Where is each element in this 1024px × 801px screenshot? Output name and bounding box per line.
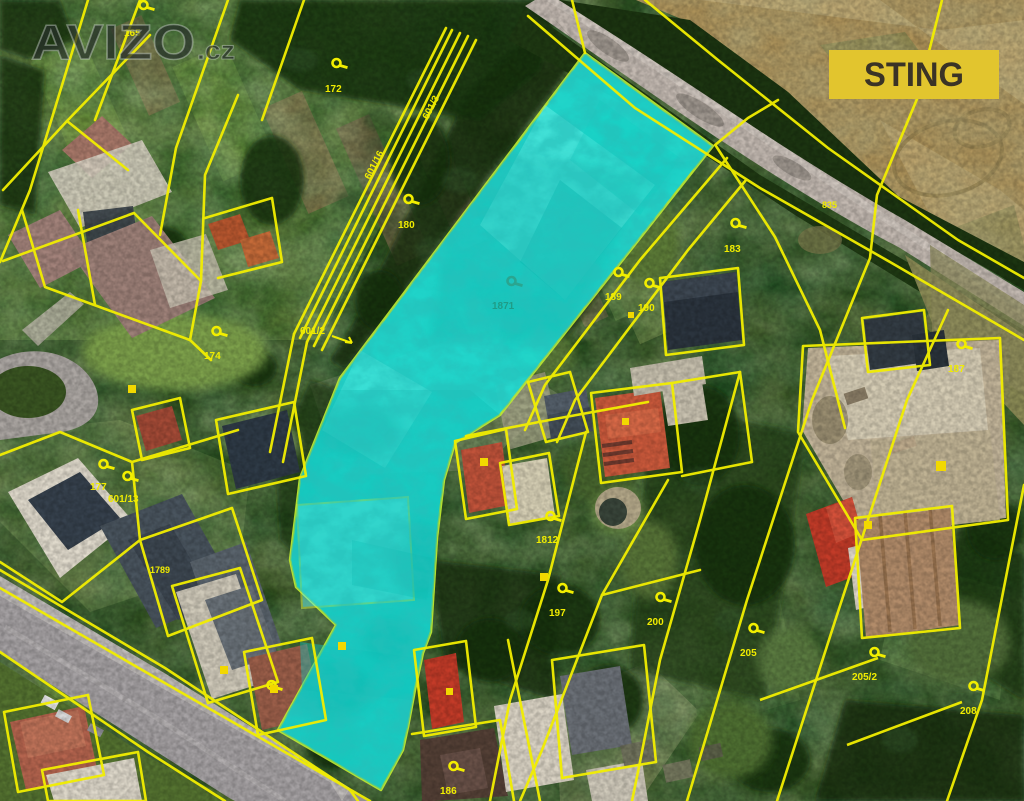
svg-text:180: 180	[398, 220, 415, 231]
svg-text:1812: 1812	[536, 535, 559, 546]
svg-text:172: 172	[325, 84, 342, 95]
svg-text:197: 197	[549, 608, 566, 619]
svg-text:208: 208	[960, 706, 977, 717]
svg-text:601/13: 601/13	[108, 494, 139, 505]
svg-text:1789: 1789	[150, 565, 170, 575]
svg-text:200: 200	[647, 617, 664, 628]
svg-text:STING: STING	[864, 56, 964, 94]
svg-text:183: 183	[724, 244, 741, 255]
svg-text:205: 205	[740, 648, 757, 659]
svg-text:189: 189	[605, 292, 622, 303]
svg-text:1871: 1871	[492, 301, 515, 312]
svg-text:177: 177	[90, 482, 107, 493]
svg-text:187: 187	[948, 364, 965, 375]
svg-text:.cz: .cz	[197, 35, 235, 65]
svg-text:174: 174	[204, 351, 221, 362]
svg-text:601/2: 601/2	[300, 326, 325, 337]
svg-text:835: 835	[822, 200, 837, 210]
svg-text:205/2: 205/2	[852, 672, 877, 683]
svg-text:190: 190	[638, 303, 655, 314]
svg-text:AVIZO: AVIZO	[31, 16, 195, 70]
svg-text:186: 186	[440, 786, 457, 797]
